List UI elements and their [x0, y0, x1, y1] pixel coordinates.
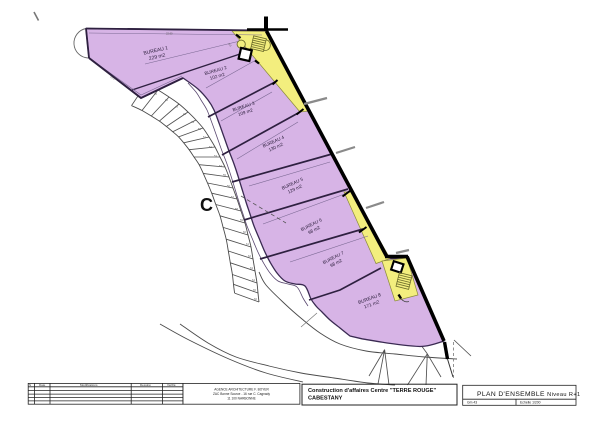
svg-text:ZAC Bonne Source - 16 rue C. C: ZAC Bonne Source - 16 rue C. Cagnady [213, 392, 270, 396]
svg-text:Modifications: Modifications [80, 383, 98, 387]
svg-text:CABESTANY: CABESTANY [308, 396, 343, 402]
svg-text:Gm 43: Gm 43 [467, 401, 477, 405]
svg-text:Echelle 1/200: Echelle 1/200 [520, 401, 541, 405]
svg-text:AGENCE ARCHITECTURE F. BOYER: AGENCE ARCHITECTURE F. BOYER [214, 388, 269, 392]
svg-text:N: N [29, 383, 31, 387]
svg-text:Dessiné: Dessiné [140, 383, 151, 387]
svg-text:22.60: 22.60 [166, 32, 173, 36]
svg-text:Date: Date [39, 383, 46, 387]
svg-text:11 100 NARBONNE: 11 100 NARBONNE [227, 397, 255, 401]
svg-text:C: C [200, 195, 213, 215]
svg-text:PLAN D'ENSEMBLE Niveau R+1: PLAN D'ENSEMBLE Niveau R+1 [477, 391, 581, 398]
svg-text:Construction d'affaires Centre: Construction d'affaires Centre "TERRE RO… [308, 388, 437, 394]
svg-text:Vérifié: Vérifié [167, 383, 176, 387]
